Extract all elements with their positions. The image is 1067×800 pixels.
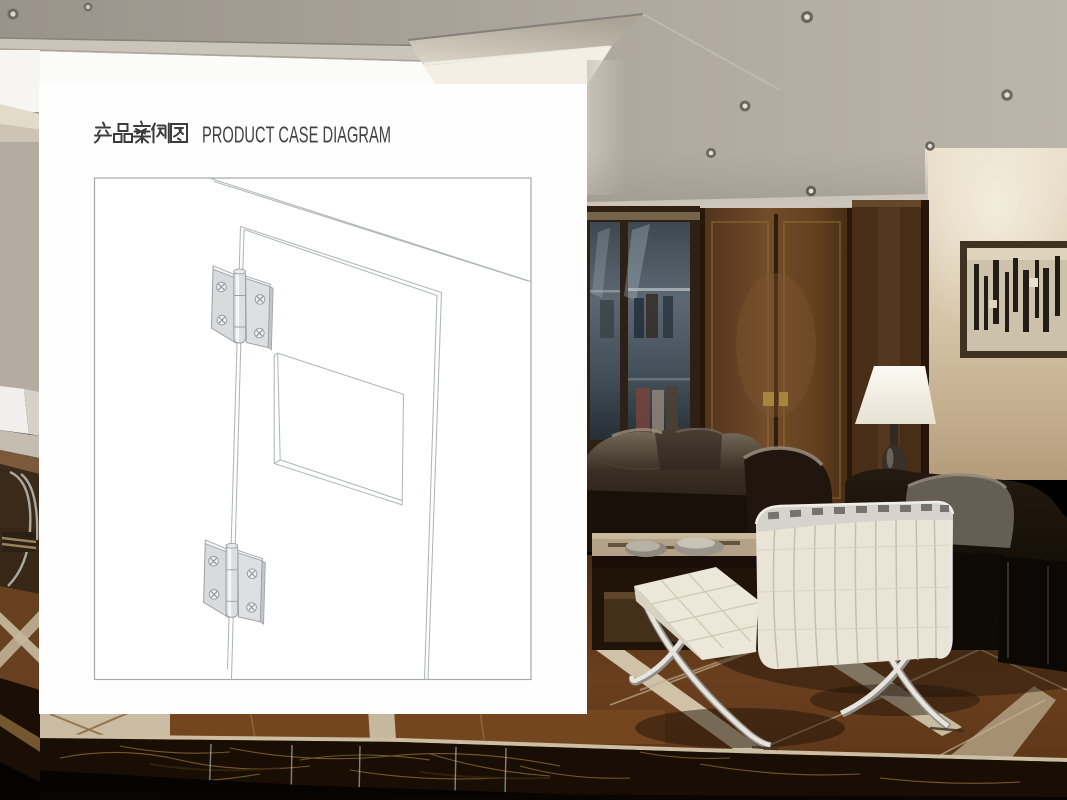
svg-text:PRODUCT CASE DIAGRAM: PRODUCT CASE DIAGRAM bbox=[202, 122, 391, 148]
